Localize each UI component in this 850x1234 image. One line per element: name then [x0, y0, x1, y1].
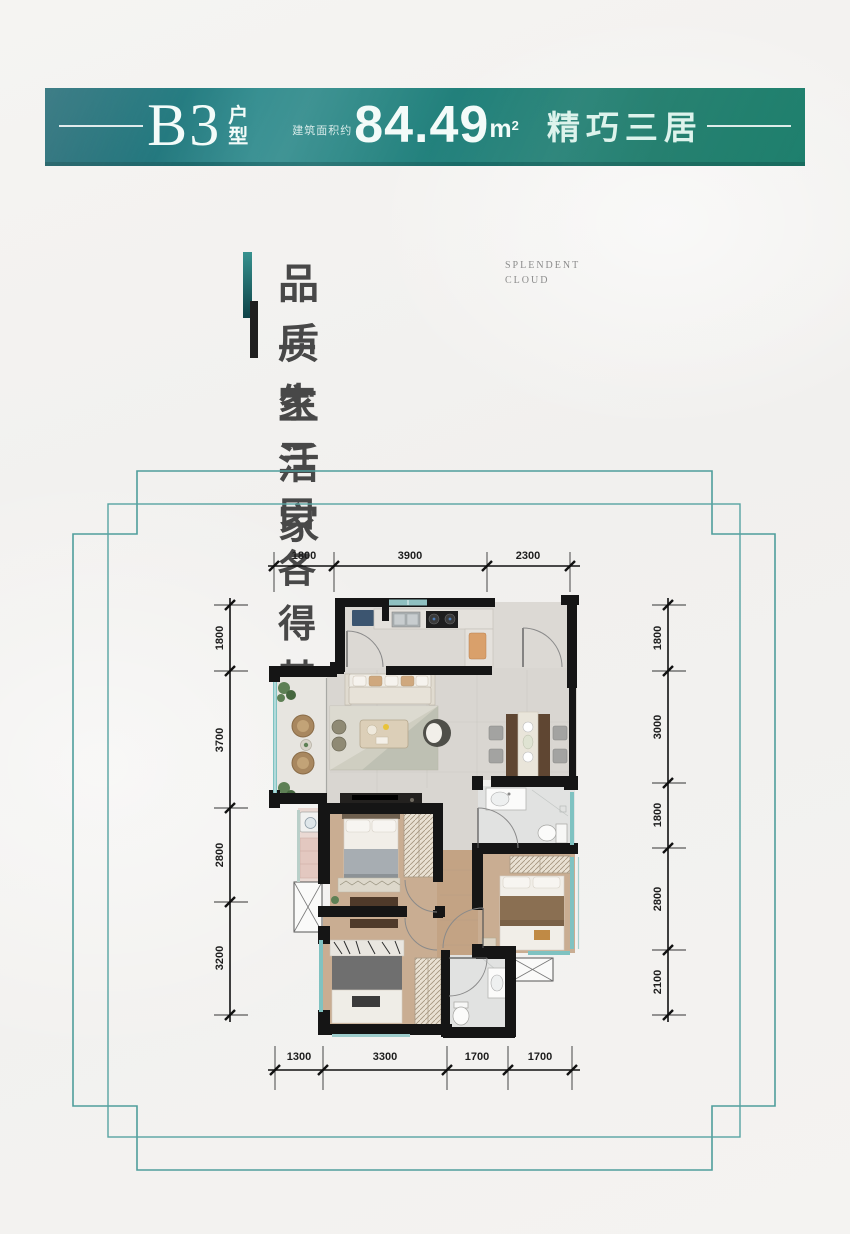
dimension-label: 3200 [214, 946, 226, 970]
bedroom2-window [319, 940, 323, 1012]
bathroom1-window [570, 792, 574, 845]
dimension-label: 1700 [465, 1051, 489, 1063]
bedroom2-bottom-window [332, 1034, 410, 1037]
dimension-label: 1700 [528, 1051, 552, 1063]
dimension-label: 2100 [652, 970, 664, 994]
equipment-platform-left [294, 882, 322, 932]
dimension-label: 1800 [292, 550, 316, 562]
dimension-label: 1300 [287, 1051, 311, 1063]
fridge [352, 610, 374, 626]
dimension-top: 1800 3900 2300 [268, 550, 580, 592]
bedroom3-bottom-window [528, 951, 570, 955]
dimension-label: 3700 [214, 728, 226, 752]
bed2-blanket [332, 956, 402, 990]
dining-bench [538, 714, 550, 776]
dimension-label: 2800 [214, 843, 226, 867]
dresser-2 [350, 919, 398, 928]
poster-page: B3 户 型 建筑面积约 84.49 m 2 精巧三居 品质生活家 SPLEND… [0, 0, 850, 1234]
dining-chair [489, 726, 503, 740]
stool [332, 720, 346, 734]
toilet-1 [556, 824, 567, 843]
dimension-label: 3900 [398, 550, 422, 562]
stool [332, 737, 346, 751]
dimension-bottom: 1300 3300 1700 1700 [268, 1046, 580, 1090]
plant [331, 896, 339, 904]
equipment-platform-right [512, 958, 553, 981]
dining-chair [553, 726, 567, 740]
dimension-label: 3000 [652, 715, 664, 739]
bedroom3-window [570, 857, 574, 949]
laundry-window [297, 810, 300, 882]
dining-chair [489, 749, 503, 763]
dresser-1 [350, 897, 398, 906]
bed2-headboard [330, 940, 404, 956]
sofa-seat [349, 687, 431, 704]
dimension-label: 1800 [652, 803, 664, 827]
dining-bench [506, 714, 518, 776]
dining-chair [553, 749, 567, 763]
dimension-label: 2800 [652, 887, 664, 911]
cutting-board [469, 633, 486, 659]
bedroom1-rug [338, 878, 400, 892]
dimension-label: 1800 [652, 626, 664, 650]
dimension-right: 1800 3000 1800 2800 2100 [652, 598, 686, 1022]
dimension-label: 3300 [373, 1051, 397, 1063]
dimension-label: 2300 [516, 550, 540, 562]
dimension-left: 1800 3700 2800 3200 [214, 598, 248, 1022]
tv [352, 795, 398, 800]
dimension-label: 1800 [214, 626, 226, 650]
floorplan-svg: 1800 3900 2300 1300 3300 170 [0, 0, 850, 1234]
